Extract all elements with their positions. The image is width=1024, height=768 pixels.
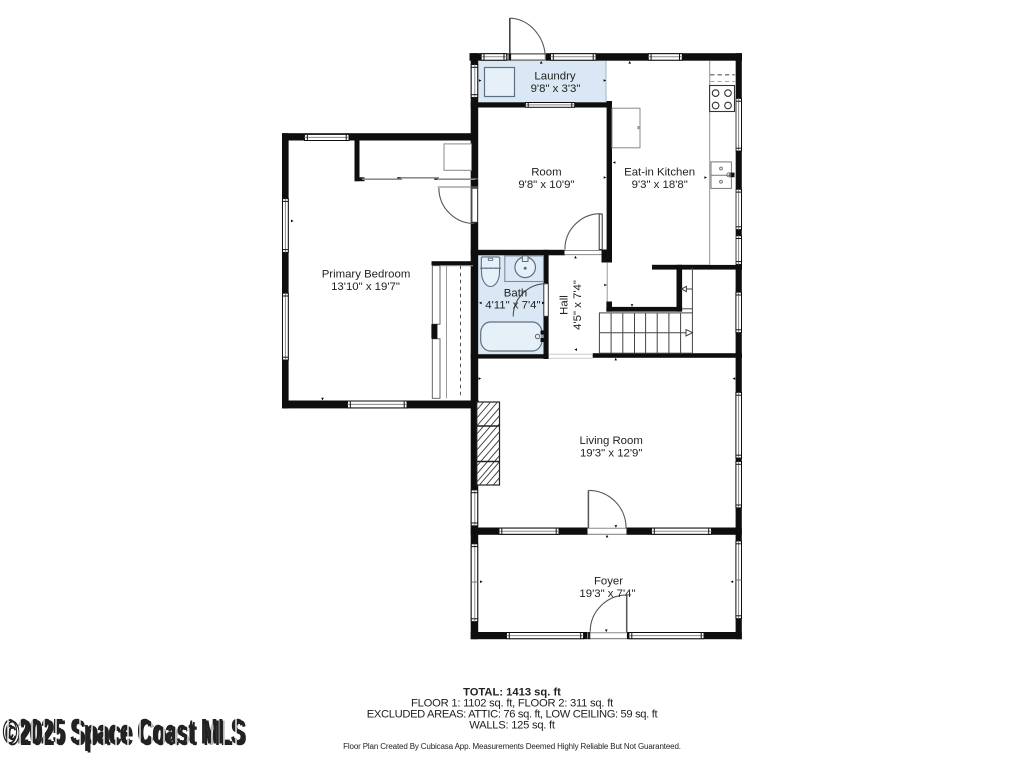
svg-text:Laundry: Laundry (534, 71, 575, 83)
svg-text:9'8" x 3'3": 9'8" x 3'3" (531, 83, 581, 95)
svg-text:9'3" x 18'8": 9'3" x 18'8" (632, 179, 688, 191)
svg-text:Foyer: Foyer (594, 576, 623, 588)
svg-text:Hall: Hall (559, 295, 571, 315)
svg-text:13'10" x 19'7": 13'10" x 19'7" (331, 281, 400, 293)
svg-text:Primary Bedroom: Primary Bedroom (322, 268, 411, 280)
svg-text:Floor Plan Created By Cubicasa: Floor Plan Created By Cubicasa App. Meas… (343, 742, 681, 751)
svg-text:Bath: Bath (504, 288, 527, 300)
svg-text:4'11" x 7'4": 4'11" x 7'4" (485, 299, 540, 311)
svg-text:19'3" x 12'9": 19'3" x 12'9" (580, 448, 642, 460)
svg-text:9'8" x 10'9": 9'8" x 10'9" (518, 179, 574, 191)
svg-text:WALLS: 125 sq. ft: WALLS: 125 sq. ft (469, 719, 556, 731)
svg-text:Room: Room (531, 166, 561, 178)
svg-text:©2025 Space Coast MLS: ©2025 Space Coast MLS (3, 713, 245, 752)
svg-text:TOTAL: 1413 sq. ft: TOTAL: 1413 sq. ft (463, 686, 561, 698)
svg-text:4'5" x 7'4": 4'5" x 7'4" (572, 280, 584, 330)
svg-text:Eat-in Kitchen: Eat-in Kitchen (624, 167, 695, 179)
svg-text:19'3" x 7'4": 19'3" x 7'4" (579, 588, 635, 600)
svg-text:Living Room: Living Room (580, 435, 643, 447)
